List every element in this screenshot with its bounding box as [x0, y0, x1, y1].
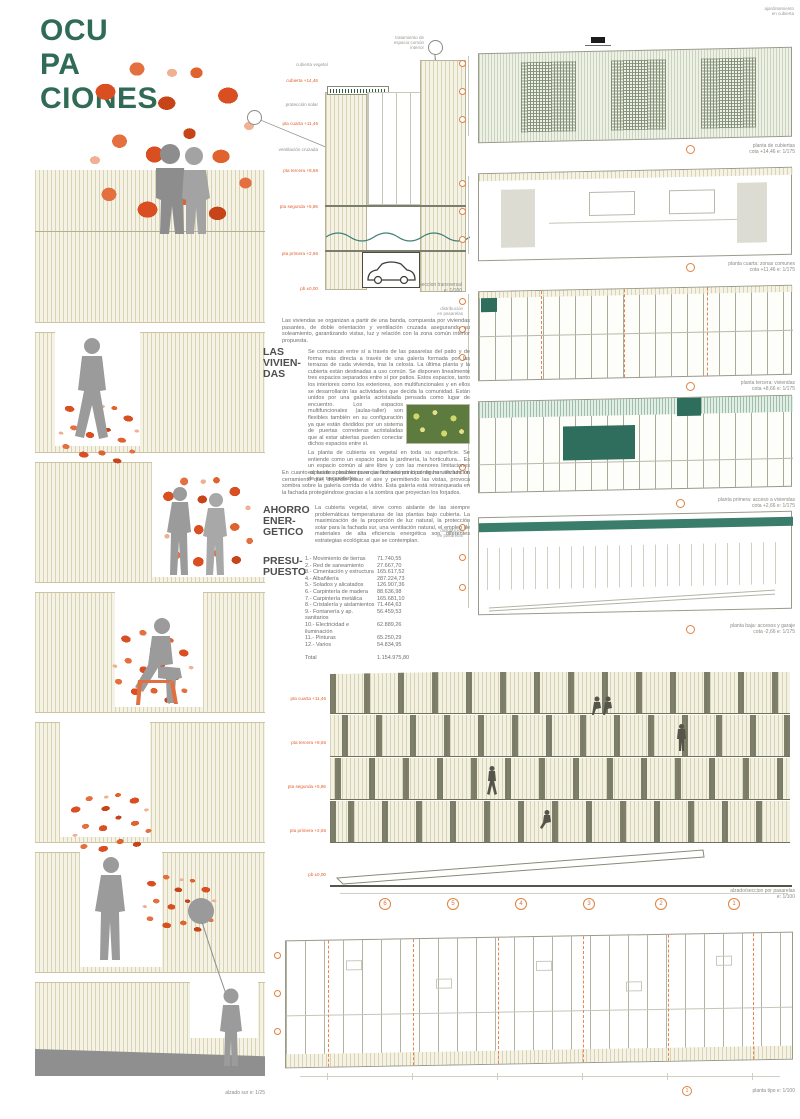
level-label: pta tercera +8,66 [282, 740, 326, 745]
grid-bubble [274, 952, 281, 959]
level-label: pta cuarta +11,46 [258, 121, 318, 126]
plan-corridor-line [479, 330, 793, 338]
elevation-floor-band [330, 715, 790, 757]
plan-corridor-line [479, 458, 793, 466]
child-silhouette [214, 988, 248, 1068]
dim-tick [497, 1073, 498, 1080]
ahorro-body: La cubierta vegetal, sirve como aislante… [315, 505, 470, 545]
section-bubble-note: tratamiento de espacio común interior [368, 35, 424, 51]
furniture-mark [346, 960, 362, 970]
leader-bubble [428, 40, 443, 55]
dimension-line [300, 1076, 780, 1077]
viviendas-body: Se comunican entre sí a través de las pa… [308, 349, 470, 483]
plan-dim-line [468, 176, 469, 254]
level-label: pb ±0,00 [258, 286, 318, 291]
grid-dashed-line [668, 935, 669, 1061]
walking-person-silhouette [70, 338, 114, 444]
grid-bubble [274, 1028, 281, 1035]
standing-person-silhouette [676, 724, 687, 751]
seated-pair-silhouette [592, 696, 616, 715]
roof-note: cubierta vegetal [296, 62, 336, 67]
scale-bar [591, 37, 605, 43]
furniture-mark [536, 961, 552, 971]
walkway-elevation-caption: alzado/seccion por pasarelas e: 1/100 [640, 888, 795, 901]
typical-plan [285, 932, 793, 1069]
section-glazed-gallery [367, 92, 422, 205]
stair-core [677, 398, 701, 417]
grid-dashed-line [328, 941, 329, 1067]
level-label: pta cuarta +11,46 [282, 696, 326, 701]
dim-tick [752, 1073, 753, 1080]
grid-bubble-number: 5 [447, 898, 459, 910]
section-slab-line [325, 205, 466, 207]
caption-bubble [686, 145, 695, 154]
people-pair-silhouette [164, 486, 236, 578]
grid-bubble-number: 1 [682, 1086, 692, 1096]
gallery-strip [479, 517, 793, 533]
ramp-lines [489, 586, 779, 612]
micro-caption-side: distribución en pasarelas [425, 306, 463, 316]
gallery-band [479, 396, 793, 419]
level-label: ventilación cruzada [258, 147, 318, 152]
plan-first-floor [478, 395, 792, 494]
elevation-floor-band [330, 758, 790, 800]
budget-row: 8.- Cristalería y aislamientos71.464,63 [305, 602, 427, 609]
parking-bays [487, 542, 785, 590]
plan-room-outline [669, 189, 715, 214]
budget-total-row: Total1.154.975,80 [305, 655, 427, 662]
people-couple-silhouette [132, 142, 228, 234]
budget-row: 5.- Solados y alicatados126.907,36 [305, 582, 427, 589]
level-label: pta segunda +5,86 [258, 204, 318, 209]
budget-row: 1.- Movimiento de tierras71.740,55 [305, 556, 427, 563]
walking-person-silhouette [486, 766, 499, 795]
grid-dashed-line [498, 938, 499, 1064]
plan-caption-4: planta primera: acceso a viviendas cota … [670, 497, 795, 510]
ground-line [330, 885, 792, 887]
section-caption: seccion transversal e: 1/100 [390, 282, 462, 295]
elevation-floor-band [330, 801, 790, 843]
viviendas-intro: Las viviendas se organizan a partir de u… [282, 318, 470, 344]
grid-bubble [459, 60, 466, 67]
grid-dashed-line [413, 939, 414, 1065]
grid-bubble-number: 3 [583, 898, 595, 910]
plan-fourth-floor [478, 167, 792, 262]
grid-dashed-line [541, 291, 542, 379]
dim-tick [412, 1073, 413, 1080]
dim-tick [667, 1073, 668, 1080]
plan-caption-3: planta tercera: viviendas cota +8,66 e: … [680, 380, 795, 393]
plan-room-block [737, 182, 767, 243]
budget-row: 10.- Electricidad e iluminación62.889,26 [305, 622, 427, 635]
budget-table: 1.- Movimiento de tierras71.740,55 2.- R… [305, 556, 427, 662]
plan-room-outline [589, 191, 635, 216]
level-label: pta primera +2,66 [258, 251, 318, 256]
dim-tick [327, 1073, 328, 1080]
common-room-block [563, 425, 635, 461]
budget-row: 3.- Cimentación y estructura165.617,52 [305, 569, 427, 576]
grid-bubble [274, 990, 281, 997]
furniture-mark [436, 979, 452, 989]
grid-bubble [459, 116, 466, 123]
roof-patio-block [611, 59, 666, 130]
plan-facade-band [479, 168, 793, 182]
plan-room-block [501, 189, 535, 248]
stair-core [481, 296, 497, 312]
grid-bubble-number: 4 [515, 898, 527, 910]
walkway-elevation [330, 666, 790, 844]
level-label: pta segunda +5,86 [282, 784, 326, 789]
grid-dashed-line [707, 287, 708, 375]
budget-row: 6.- Carpintería de madera88.636,98 [305, 589, 427, 596]
grid-bubble [459, 298, 466, 305]
grid-bubble-number: 6 [379, 898, 391, 910]
level-label: protección solar [258, 102, 318, 107]
south-elevation-caption: alzado sur e: 1/25 [150, 1090, 265, 1096]
furniture-mark [626, 981, 642, 991]
roof-patio-block [521, 61, 576, 132]
grid-bubble [459, 554, 466, 561]
standing-person-silhouette [90, 856, 132, 964]
grid-bubble [459, 584, 466, 591]
plan-roof [478, 47, 792, 144]
plan-caption-2: planta cuarta: zonas comunes cota +11,46… [680, 261, 795, 274]
ahorro-heading: AHORRO ENER- GETICO [263, 505, 315, 538]
level-label: pb ±0,00 [282, 872, 326, 877]
plan-facade-band [479, 286, 793, 299]
grid-bubble [459, 180, 466, 187]
viviendas-heading: LAS VIVIEN- DAS [263, 347, 309, 380]
seated-person-silhouette [538, 810, 554, 829]
grid-bubble [459, 208, 466, 215]
plan-caption-1: planta de cubiertas cota +14,46 e: 1/175 [695, 143, 795, 156]
budget-row: 2.- Red de saneamiento27.667,70 [305, 563, 427, 570]
budget-row: 9.- Fontanería y ap. sanitarios56.459,53 [305, 609, 427, 622]
ramp-outline [335, 846, 710, 886]
micro-caption-roof: ajardinamiento en cubierta [738, 6, 794, 16]
level-label: cubierta +14,46 [258, 78, 318, 83]
grid-bubble [459, 236, 466, 243]
grid-bubble [459, 88, 466, 95]
scale-bar-line [585, 45, 611, 46]
seated-person-silhouette [124, 618, 190, 708]
grid-dashed-line [624, 289, 625, 377]
grid-dashed-line [753, 933, 754, 1059]
elevation-floor-band [330, 672, 790, 714]
budget-row: 7.- Carpintería metálica165.681,10 [305, 596, 427, 603]
title-line-1: OCU [40, 14, 158, 48]
dim-tick [582, 1073, 583, 1080]
foliage-scatter [65, 781, 161, 865]
budget-row: 12.- Varios54.834,95 [305, 642, 427, 649]
section-right-wall [420, 60, 466, 292]
budget-row: 11.- Pinturas65.250,29 [305, 635, 427, 642]
plan-corridor-line [549, 219, 749, 224]
level-label: pta tercera +8,66 [258, 168, 318, 173]
furniture-mark [716, 956, 732, 966]
roof-patio-block [701, 57, 756, 128]
typical-plan-caption: planta tipo e: 1/100 [697, 1088, 795, 1094]
plan-ground-floor [478, 511, 792, 616]
grid-dashed-line [583, 936, 584, 1062]
ventilation-wave [326, 228, 470, 246]
plan-dim-line [468, 56, 469, 136]
green-roof-photo [406, 404, 470, 444]
ahorro-intro: En cuanto al fuerte soleamiento en la fa… [282, 470, 470, 496]
budget-row: 4.- Albañilería287.224,73 [305, 576, 427, 583]
presentation-board: OCU PA CIONES [0, 0, 800, 1119]
level-label: pta primera +2,66 [282, 828, 326, 833]
plan-caption-5: planta baja: accesos y garaje cota -2,66… [680, 623, 795, 636]
section-left-wall [325, 92, 367, 290]
plan-third-floor [478, 285, 792, 382]
